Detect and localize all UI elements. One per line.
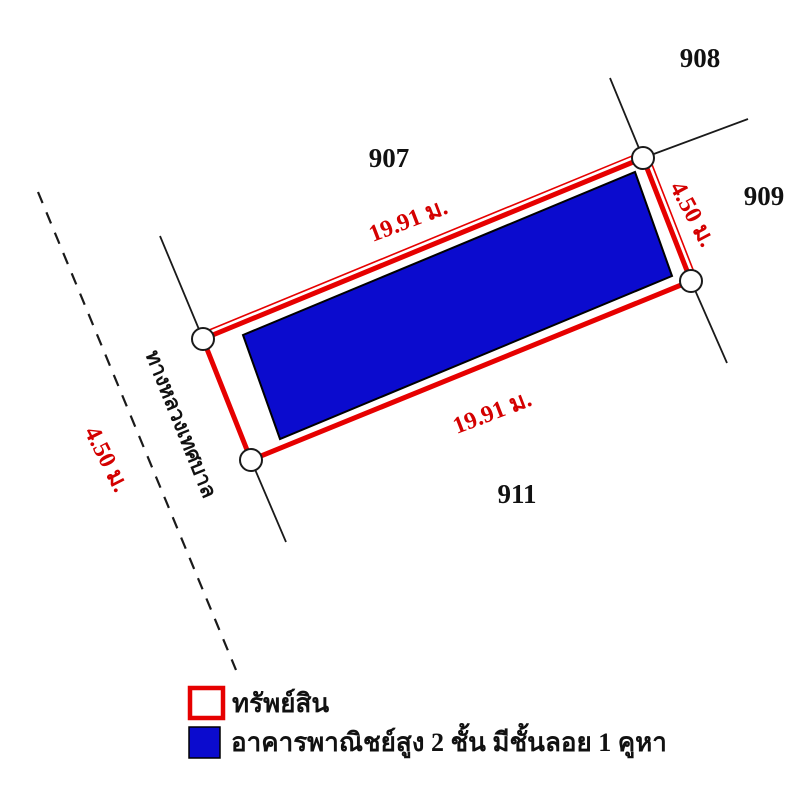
legend-property-label: ทรัพย์สิน [232,688,329,718]
corner-marker-west [192,328,214,350]
survey-line-northeast [643,119,748,158]
survey-line-west [160,236,203,339]
road-name-label: ทางหลวงเทศบาล [140,347,221,502]
legend-property-swatch [190,688,223,718]
corner-marker-north [632,147,654,169]
survey-line-south [251,460,286,542]
corner-marker-east [680,270,702,292]
survey-line-north [610,78,643,158]
parcel-label-909: 909 [744,181,785,211]
survey-plot-page: 907 908 909 911 19.91 ม. 19.91 ม. 4.50 ม… [0,0,800,800]
legend-building-swatch [189,727,220,758]
road-dashed-line [38,192,236,670]
survey-line-east [691,281,727,363]
legend: ทรัพย์สิน อาคารพาณิชย์สูง 2 ชั้น มีชั้นล… [189,688,667,759]
legend-building-label: อาคารพาณิชย์สูง 2 ชั้น มีชั้นลอย 1 คูหา [231,722,667,759]
dimension-label-bottom: 19.91 ม. [450,386,536,440]
survey-diagram: 907 908 909 911 19.91 ม. 19.91 ม. 4.50 ม… [0,0,800,800]
parcel-label-911: 911 [497,479,536,509]
corner-marker-south [240,449,262,471]
parcel-label-907: 907 [369,143,410,173]
dimension-label-road: 4.50 ม. [79,422,134,496]
parcel-label-908: 908 [680,43,721,73]
building-footprint [243,172,672,439]
